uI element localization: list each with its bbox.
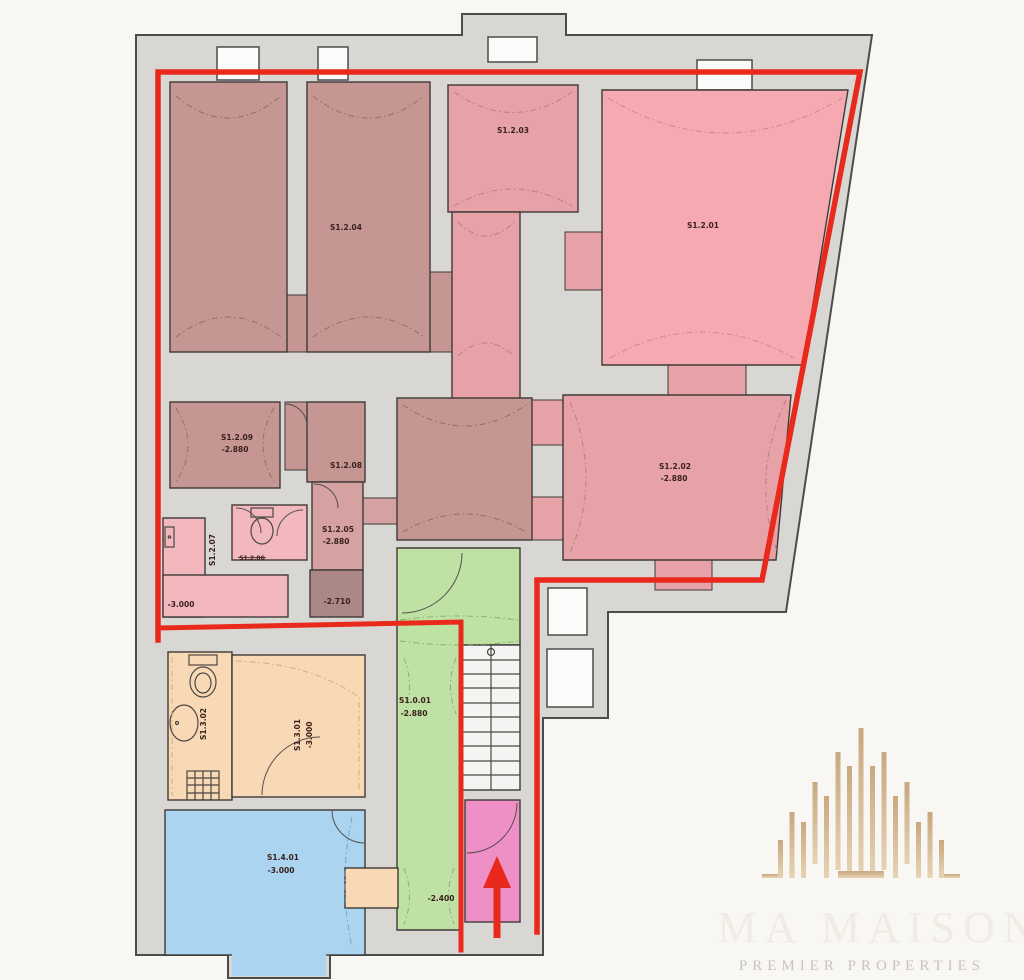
watermark-name: MA MAISON <box>717 903 1024 952</box>
label-s1001: S1.0.01 <box>399 696 431 705</box>
room-s1204-right <box>307 82 430 352</box>
label-s1204: S1.2.04 <box>330 223 362 232</box>
floorplan-svg: S1.2.04 S1.2.03 S1.2.01 S1.2.02 -2.880 S… <box>0 0 1024 980</box>
label-s1209: S1.2.09 <box>221 433 253 442</box>
room-s1401 <box>165 810 365 955</box>
watermark-tagline: PREMIER PROPERTIES <box>739 958 985 974</box>
level-s1301: -3.000 <box>305 722 314 749</box>
label-s1205: S1.2.05 <box>322 525 354 534</box>
passage <box>430 272 452 352</box>
floorplan-page: S1.2.04 S1.2.03 S1.2.01 S1.2.02 -2.880 S… <box>0 0 1024 980</box>
chimney-void <box>488 37 537 62</box>
label-s1201: S1.2.01 <box>687 221 719 230</box>
passage <box>532 497 563 540</box>
room-s1204-left <box>170 82 287 352</box>
passage <box>668 365 746 397</box>
shaft-void <box>548 588 587 635</box>
room-magenta <box>465 800 520 922</box>
room-s1205-lower <box>310 570 363 617</box>
level-s1202: -2.880 <box>661 474 688 483</box>
room-s1207-wc <box>232 505 307 560</box>
room-s1203-column <box>452 212 520 400</box>
room-s1207-strip <box>163 575 288 617</box>
room-orange-tab <box>345 868 398 908</box>
level-s1401: -3.000 <box>268 866 295 875</box>
label-s1206: S1.2.06 <box>239 555 265 562</box>
passage <box>287 295 307 352</box>
passage <box>532 400 563 445</box>
chimney-void <box>217 47 259 80</box>
label-s1401: S1.4.01 <box>267 853 299 862</box>
label-s1207: S1.2.07 <box>208 534 217 566</box>
passage <box>363 498 397 524</box>
room-center-hall <box>397 398 532 540</box>
level-s1207: -3.000 <box>168 600 195 609</box>
label-s1301: S1.3.01 <box>293 719 302 751</box>
chimney-void <box>697 60 752 90</box>
shaft-void <box>547 649 593 707</box>
room-s1208 <box>307 402 365 482</box>
label-s1203: S1.2.03 <box>497 126 529 135</box>
label-s1302: S1.3.02 <box>199 708 208 740</box>
label-s1202: S1.2.02 <box>659 462 691 471</box>
passage <box>565 232 602 290</box>
passage <box>285 402 307 470</box>
level-s1205-lower: -2.710 <box>324 597 351 606</box>
room-s1401-ext <box>232 951 326 976</box>
chimney-void <box>318 47 348 80</box>
passage <box>655 560 712 590</box>
level-s1001: -2.880 <box>401 709 428 718</box>
room-s1203 <box>448 85 578 212</box>
label-s1208: S1.2.08 <box>330 461 362 470</box>
level-s1209: -2.880 <box>222 445 249 454</box>
level-s1001-lower: -2.400 <box>428 894 455 903</box>
level-s1205: -2.880 <box>323 537 350 546</box>
